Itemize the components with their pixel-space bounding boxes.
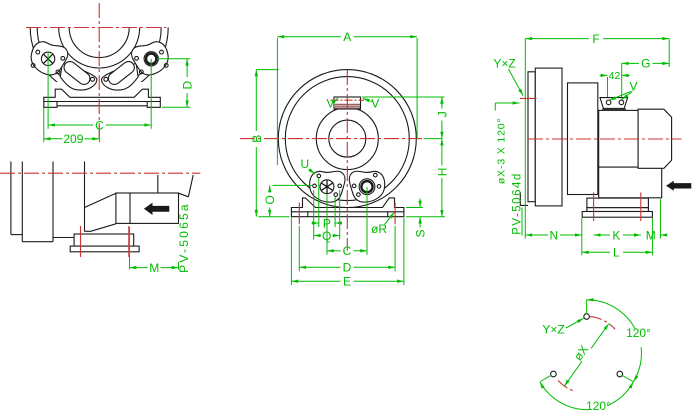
svg-text:E: E — [343, 275, 351, 289]
svg-text:M: M — [646, 228, 656, 242]
svg-text:F: F — [592, 32, 599, 46]
svg-text:C: C — [95, 118, 104, 132]
svg-text:L: L — [613, 246, 620, 260]
svg-text:D: D — [181, 81, 195, 90]
svg-text:øX-3 X 120°: øX-3 X 120° — [496, 117, 508, 184]
svg-text:Y×Z: Y×Z — [542, 323, 564, 337]
svg-text:U: U — [300, 157, 309, 171]
svg-text:B: B — [250, 135, 264, 143]
svg-text:G: G — [641, 57, 650, 71]
svg-text:120°: 120° — [586, 399, 611, 413]
svg-text:Y×Z: Y×Z — [493, 56, 515, 70]
svg-text:J: J — [436, 111, 450, 117]
svg-text:120°: 120° — [626, 326, 651, 340]
svg-text:209: 209 — [63, 132, 83, 146]
svg-text:42: 42 — [609, 70, 621, 82]
svg-text:øR: øR — [371, 222, 387, 236]
svg-text:M: M — [149, 261, 159, 275]
svg-text:A: A — [343, 30, 351, 44]
svg-text:PV-5065a: PV-5065a — [177, 202, 191, 273]
svg-text:H: H — [436, 168, 450, 177]
svg-text:Q: Q — [322, 229, 331, 243]
svg-text:C: C — [343, 244, 352, 258]
svg-text:V: V — [371, 96, 379, 110]
svg-text:V: V — [326, 96, 334, 110]
svg-text:K: K — [612, 228, 620, 242]
svg-text:N: N — [549, 228, 558, 242]
svg-text:S: S — [414, 229, 428, 237]
svg-text:D: D — [343, 261, 352, 275]
svg-text:O: O — [263, 195, 277, 204]
